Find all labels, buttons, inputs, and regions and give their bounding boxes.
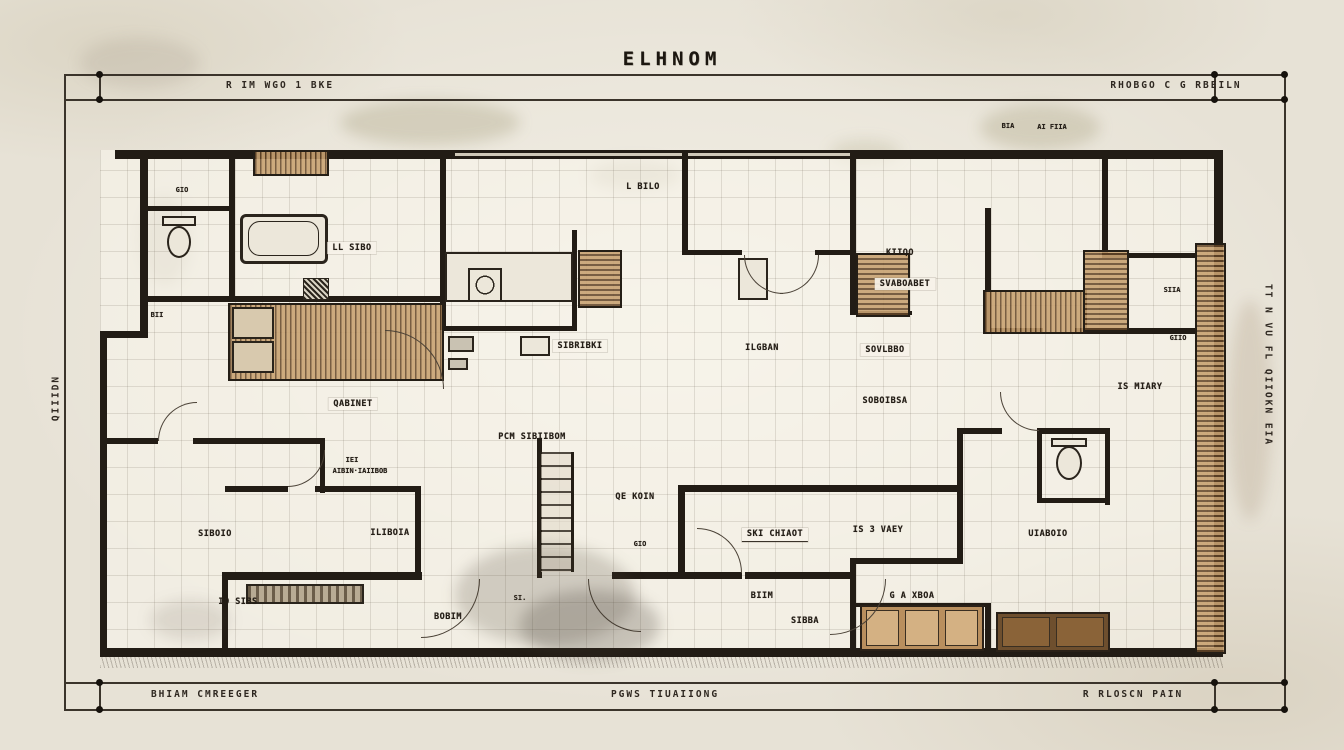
room-label: G A XBOA — [890, 591, 935, 601]
room-label: BII — [151, 311, 164, 319]
room-label: IEI — [346, 456, 359, 464]
dimension-tick — [1281, 71, 1288, 78]
room-label: GIO — [634, 540, 647, 548]
room-label: SIIA — [1164, 286, 1181, 294]
pencil-shading — [150, 600, 230, 640]
dimension-tick — [1211, 71, 1218, 78]
wall-segment — [193, 438, 325, 444]
wall-segment — [140, 150, 148, 338]
wall-segment — [815, 250, 855, 255]
bed-pillow — [232, 307, 274, 339]
bed-pillow — [232, 341, 274, 373]
wall-segment — [1038, 428, 1110, 434]
wall-segment — [1037, 428, 1042, 502]
dim-label-left: QIIIDN — [51, 375, 62, 421]
furniture-wardrobe — [253, 150, 329, 176]
dimension-tick — [96, 679, 103, 686]
wall-segment — [143, 296, 445, 302]
room-label: AI FIIA — [1037, 123, 1067, 131]
room-label: IO SIBS — [218, 597, 257, 607]
sink — [520, 336, 550, 356]
room-label: BIIM — [751, 591, 773, 601]
dimension-tick — [1211, 96, 1218, 103]
room-label: ILGBAN — [745, 343, 779, 353]
room-label: L BILO — [626, 182, 660, 192]
dim-label-bottom-center: PGWS TIUAIIONG — [611, 689, 719, 700]
wall-segment — [678, 485, 963, 492]
furniture-counter-right — [983, 290, 1087, 334]
wall-segment — [1105, 428, 1110, 505]
dim-label-bottom-right: R RLOSCN PAIN — [1083, 689, 1183, 700]
wall-segment — [682, 250, 742, 255]
wall-segment — [745, 572, 853, 579]
wall-segment — [100, 331, 107, 657]
dim-label-right: TT N VU FL QIIOKN EIA — [1263, 284, 1274, 446]
room-label: GIO — [176, 186, 189, 194]
kitchen-stove — [468, 268, 502, 302]
room-label: SOVLBBO — [860, 344, 909, 356]
toilet-bowl — [1056, 446, 1082, 480]
dimension-line — [65, 99, 1286, 101]
wall-segment — [957, 428, 1002, 434]
toilet-bowl — [167, 226, 191, 258]
dimension-tick — [1281, 96, 1288, 103]
cabinet-row-dark — [996, 612, 1110, 652]
window-counter — [246, 584, 364, 604]
room-label: BOBIM — [434, 612, 462, 622]
hatch-block — [303, 278, 329, 300]
kitchen-sink — [448, 336, 474, 352]
wall-segment — [612, 572, 742, 579]
room-label: LL SIBO — [327, 242, 376, 254]
dimension-tick — [1211, 706, 1218, 713]
cabinet-door — [1002, 617, 1050, 647]
room-label: GIIO — [1170, 334, 1187, 342]
room-label: UIABOIO — [1028, 529, 1067, 539]
room-label: BIA — [1002, 122, 1015, 130]
dimension-tick — [96, 706, 103, 713]
wall-segment — [957, 428, 963, 561]
drawing-title: ELHNOM — [623, 48, 722, 70]
room-label: SVABOABET — [875, 278, 936, 290]
toilet-tank — [162, 216, 196, 226]
dimension-line — [65, 682, 1286, 684]
wall-segment — [143, 206, 232, 211]
ground-hatch — [100, 657, 1223, 668]
dimension-tick — [96, 71, 103, 78]
furniture-cabinet-right — [1083, 250, 1129, 332]
room-label: IS 3 VAEY — [853, 525, 904, 535]
wall-segment — [678, 485, 685, 579]
wall-segment — [850, 558, 963, 564]
wall-segment — [443, 326, 575, 331]
kitchen-counter — [445, 252, 573, 302]
furniture-table — [578, 250, 622, 308]
wall-segment — [415, 486, 421, 579]
wall-segment — [100, 438, 158, 444]
room-label: PCM SIBIIBOM — [498, 432, 565, 442]
kitchen-sink-small — [448, 358, 468, 370]
cabinet-door — [905, 610, 938, 646]
room-label: SKI CHIAOT — [742, 528, 808, 542]
dimension-tick — [1281, 706, 1288, 713]
paper-smudge — [80, 38, 200, 88]
wall-segment — [229, 150, 235, 302]
wall-segment — [1037, 498, 1110, 503]
dimension-tick — [96, 96, 103, 103]
cabinet-row — [860, 605, 984, 651]
wall-segment — [1102, 150, 1108, 257]
wall-segment — [985, 603, 991, 657]
room-label: SIBOIO — [198, 529, 232, 539]
pencil-shading — [520, 590, 660, 660]
cabinet-door — [1056, 617, 1104, 647]
dimension-tick — [1211, 679, 1218, 686]
dim-label-bottom-left: BHIAM CMREEGER — [151, 689, 259, 700]
dim-label-top-right: RHOBGO C G RBEILN — [1110, 80, 1241, 91]
room-label: SIBBA — [791, 616, 819, 626]
dimension-tick — [1281, 679, 1288, 686]
cabinet-door — [945, 610, 978, 646]
window-band — [455, 153, 850, 156]
dimension-line — [65, 74, 1286, 76]
room-label: QABINET — [328, 398, 377, 410]
wall-segment — [682, 150, 688, 253]
wall-segment — [225, 486, 288, 492]
dimension-line — [65, 709, 1286, 711]
wall-wood-strip — [1195, 243, 1226, 654]
room-label: IS MIARY — [1118, 382, 1163, 392]
bathtub-inner — [248, 221, 319, 256]
room-label: ILIBOIA — [370, 528, 409, 538]
room-label: AIBIN·IAIIBOB — [333, 467, 388, 475]
paper-smudge — [340, 100, 520, 145]
wall-segment — [315, 486, 420, 492]
room-label: SOBOIBSA — [863, 396, 908, 406]
dim-label-top-left: R IM WGO 1 BKE — [226, 80, 334, 91]
room-label: KIIQO — [886, 248, 914, 258]
dimension-line — [1284, 74, 1286, 711]
room-label: SIBRIBKI — [553, 340, 608, 352]
room-label: QE KOIN — [615, 492, 654, 502]
wall-segment — [222, 572, 422, 580]
dimension-line — [64, 74, 66, 711]
